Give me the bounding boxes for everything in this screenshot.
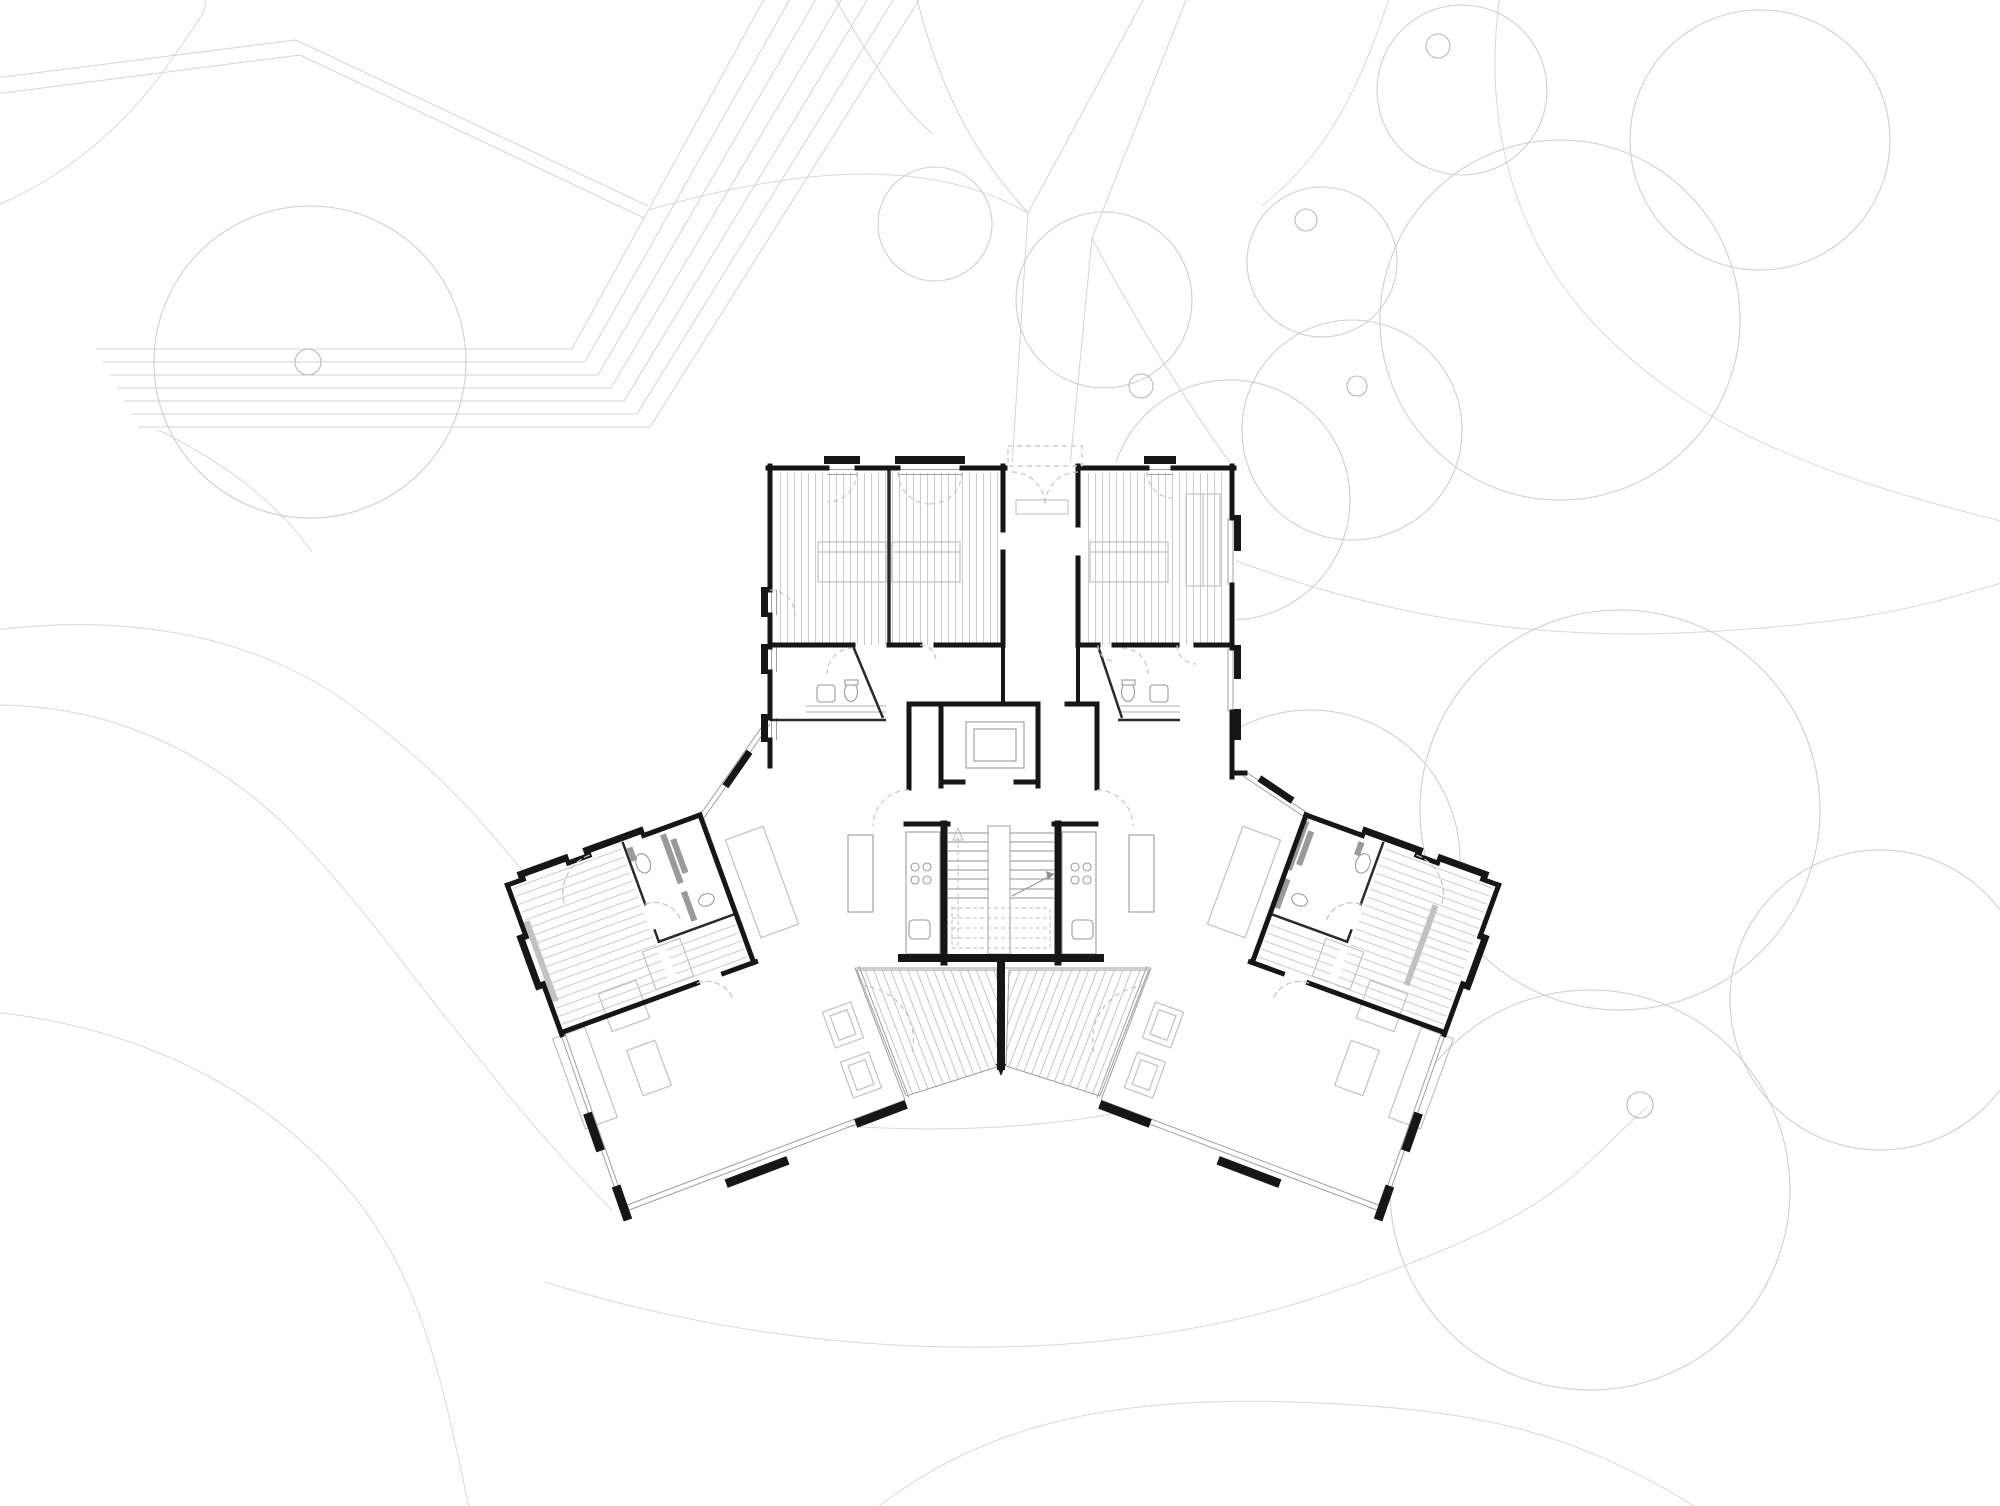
- floor-plan-canvas: [0, 0, 2000, 1506]
- floor-plan-page: [0, 0, 2000, 1506]
- site-steps: [96, 0, 924, 427]
